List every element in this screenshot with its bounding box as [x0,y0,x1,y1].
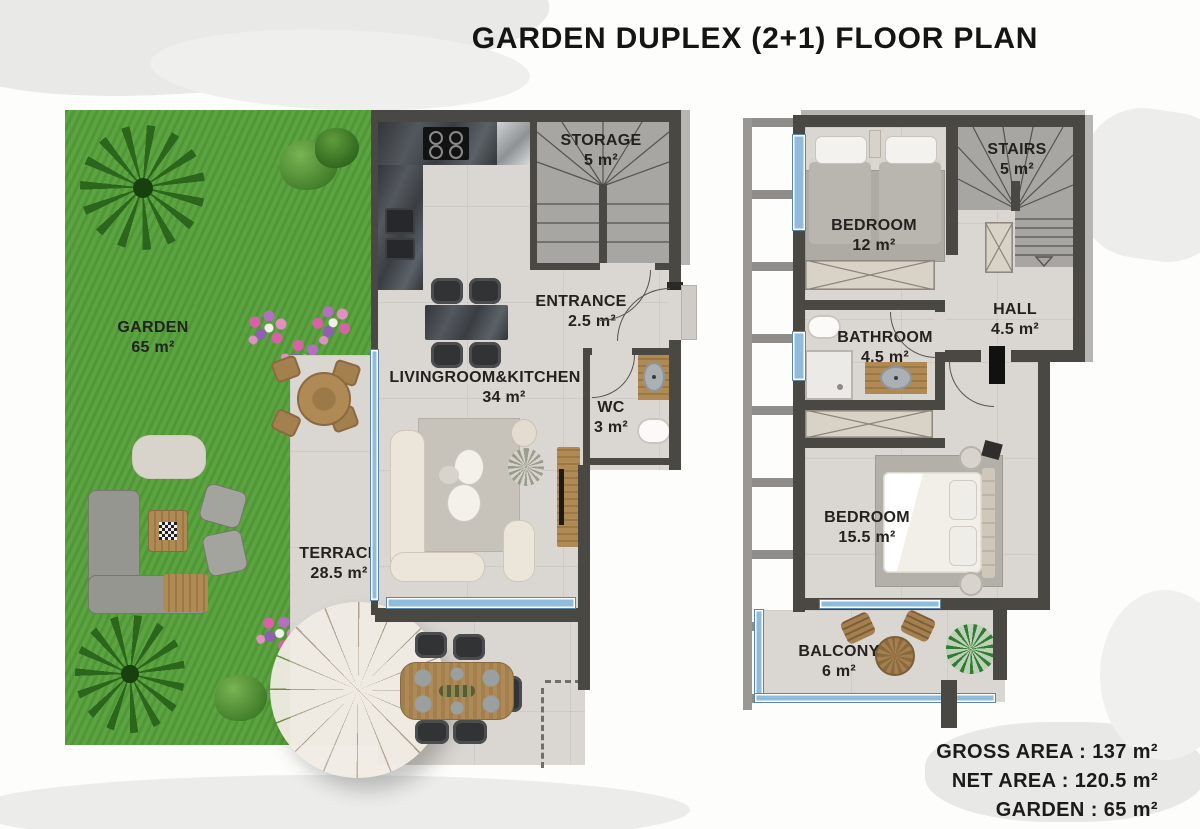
door-opening [600,263,655,270]
floor-plan-canvas: GARDEN DUPLEX (2+1) FLOOR PLAN [0,0,1200,829]
pergola-beam [752,118,793,127]
room-name: TERRACE [299,544,378,564]
wall-segment [583,355,590,465]
wall-segment [800,300,945,310]
sliding-door-window [387,598,575,608]
roof-eave [1085,115,1093,362]
plant-icon [508,448,544,486]
hall-label: HALL 4.5 m² [991,300,1039,340]
room-name: LIVINGROOM&KITCHEN [389,368,580,388]
pergola-beam [752,478,793,487]
wardrobe [805,260,935,290]
outdoor-chair [415,720,449,744]
room-area: 4.5 m² [991,320,1039,340]
living-window [371,350,378,600]
summary-label: GARDEN : [996,799,1098,821]
wall-segment [1073,127,1085,362]
drain-icon [894,376,898,380]
roof-eave [681,110,690,265]
balcony-table [875,636,915,676]
wall-segment [530,122,537,270]
room-area: 3 m² [594,418,628,438]
summary-label: NET AREA : [952,770,1069,792]
living-sofa [390,552,485,582]
burner-icon [449,131,463,145]
outdoor-dining-table [400,662,514,720]
bed-pillow [815,136,867,164]
pergola-beam [752,190,793,199]
outdoor-chair [453,634,485,660]
storage-label: STORAGE 5 m² [561,131,642,171]
wall-segment [941,680,957,728]
coffee-table [455,450,483,484]
living-label: LIVINGROOM&KITCHEN 34 m² [389,368,580,408]
bed-pillow [885,136,937,164]
balcony-label: BALCONY 6 m² [798,642,879,682]
door-opening [592,348,632,355]
bed-pillow [949,480,977,520]
room-name: BEDROOM [831,216,917,236]
room-name: STAIRS [987,140,1046,160]
bathroom-window [793,332,805,380]
table-runner [439,685,475,697]
nightstand [959,572,983,596]
wall-segment [793,115,1085,127]
wall-segment [800,438,945,448]
summary-row-net: NET AREA : 120.5 m² [936,767,1158,796]
garden-loveseat [132,435,206,479]
wall-segment [946,127,958,255]
coffee-table [448,485,480,521]
dining-chair [469,278,501,304]
bed-headboard [982,468,995,578]
dining-chair [469,342,501,368]
room-name: HALL [991,300,1039,320]
palm-tree-icon [75,615,185,733]
summary-row-garden: GARDEN : 65 m² [936,796,1158,825]
tv-unit [557,447,580,547]
pergola-beam [752,334,793,343]
room-area: 5 m² [987,160,1046,180]
wall-segment [375,608,590,622]
outdoor-chair [453,720,487,744]
wall-segment [993,610,1007,680]
room-name: WC [594,398,628,418]
brush-stroke [0,775,690,829]
nightstand [869,130,881,158]
terrace-edge-ticks [541,688,544,768]
bed-pillow [949,526,977,566]
room-name: BEDROOM [824,508,910,528]
kitchen-sink [385,238,415,260]
fridge [497,122,530,165]
door-opening [935,312,945,352]
pergola-beam [752,406,793,415]
pergola-beam [752,550,793,559]
bedroom1-label: BEDROOM 12 m² [831,216,917,256]
summary-value: 65 m² [1104,799,1158,821]
garden-lounger [163,574,208,612]
garden-chair [201,528,249,577]
balcony-railing [755,610,763,698]
summary-value: 120.5 m² [1075,770,1158,792]
garden-chair [198,482,249,530]
ground-floor-plan: GARDEN 65 m² [65,110,681,780]
wc-vanity [638,355,670,400]
page-title: GARDEN DUPLEX (2+1) FLOOR PLAN [440,22,1070,56]
room-area: 5 m² [561,151,642,171]
room-area: 6 m² [798,662,879,682]
garden-coffee-table [148,510,188,552]
drain-icon [837,384,843,390]
room-area: 15.5 m² [824,528,910,548]
palm-tree-icon [80,125,205,250]
burner-icon [449,145,463,159]
bush-icon [215,675,267,721]
flowers-icon [245,310,291,350]
outdoor-chair [415,632,447,658]
room-name: GARDEN [117,318,188,338]
entry-step [681,285,697,340]
wall-segment [371,110,681,122]
terrace-label: TERRACE 28.5 m² [299,544,378,584]
wall-segment [1038,362,1050,610]
wall-segment [583,458,681,465]
kitchen-sink [385,208,415,234]
door-opening [669,290,681,340]
drain-icon [652,375,656,379]
dining-chair [431,342,463,368]
tv-icon [559,469,564,525]
burner-icon [429,145,443,159]
room-area: 65 m² [117,338,188,358]
pouf [512,420,536,446]
dining-chair [431,278,463,304]
living-sofa [503,520,535,582]
wardrobe [805,410,933,438]
cooktop [423,127,469,160]
summary-label: GROSS AREA : [936,741,1086,763]
chess-board [159,522,177,540]
wall-segment [578,465,590,690]
bedroom2-label: BEDROOM 15.5 m² [824,508,910,548]
balcony-railing [755,694,995,702]
stairs-label: STAIRS 5 m² [987,140,1046,180]
room-name: BALCONY [798,642,879,662]
pergola-rail [743,118,752,710]
bedroom1-window [793,135,805,230]
bedroom2-window [820,600,940,608]
room-area: 12 m² [831,236,917,256]
wc-toilet [637,418,671,444]
wc-sink [643,362,665,392]
wall-segment [945,350,1085,362]
kitchen-island [425,305,508,340]
burner-icon [429,131,443,145]
area-summary: GROSS AREA : 137 m² NET AREA : 120.5 m² … [936,738,1158,825]
terrace-edge-ticks [545,680,581,683]
summary-row-gross: GROSS AREA : 137 m² [936,738,1158,767]
wc-label: WC 3 m² [594,398,628,438]
plant-icon [946,624,996,674]
bush-icon [315,128,359,168]
pergola-beam [752,262,793,271]
wardrobe [985,222,1013,273]
garden-label: GARDEN 65 m² [117,318,188,358]
room-area: 34 m² [427,388,580,408]
bathroom-toilet [807,315,841,339]
room-area: 28.5 m² [299,564,378,584]
wall-segment [800,400,945,410]
bistro-table [297,372,351,426]
summary-value: 137 m² [1092,741,1158,763]
upper-floor-plan: STAIRS 5 m² BEDROOM 12 m² [743,110,1095,728]
nightstand [959,446,983,470]
side-table [439,466,459,484]
bathroom-sink [880,366,912,390]
room-name: STORAGE [561,131,642,151]
